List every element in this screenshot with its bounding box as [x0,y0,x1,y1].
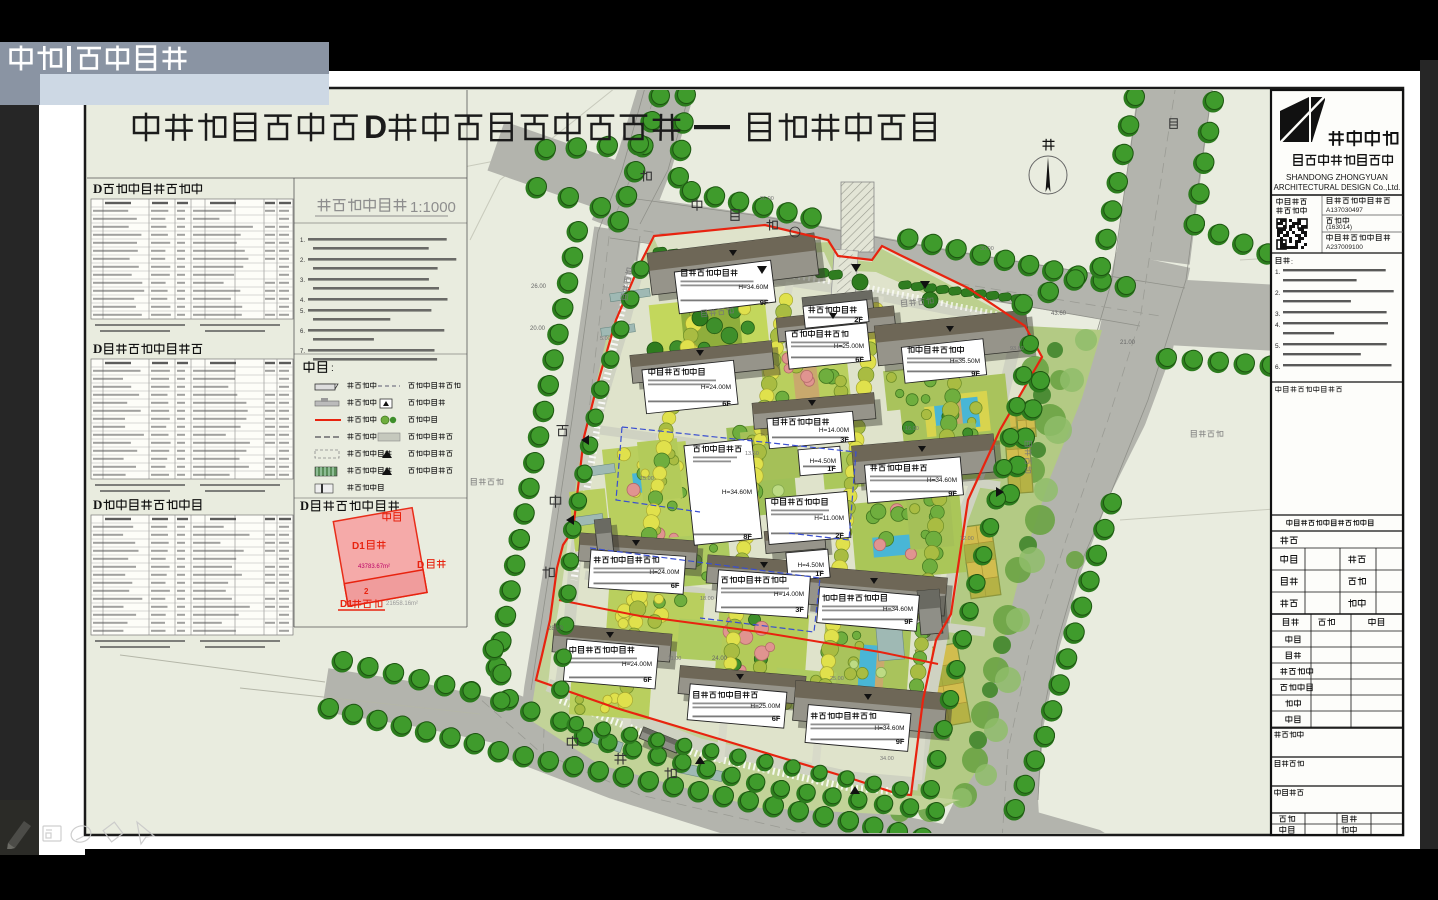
svg-text:9F: 9F [896,737,905,746]
svg-text:D: D [300,499,309,513]
svg-text:30.00: 30.00 [980,246,994,252]
svg-text:6F: 6F [772,714,781,723]
svg-text:11.00: 11.00 [668,656,681,662]
svg-text:18.00: 18.00 [700,596,714,602]
svg-text:H=4.50M: H=4.50M [797,562,824,569]
svg-text:D: D [364,109,387,145]
svg-text:6F: 6F [855,355,864,364]
svg-text:43.60: 43.60 [1051,311,1067,317]
svg-text:9F: 9F [971,369,980,378]
svg-text:H=34.60M: H=34.60M [722,489,752,496]
svg-text:28.00: 28.00 [548,626,564,632]
svg-text:D: D [93,181,102,196]
svg-text:93.60: 93.60 [1010,346,1024,352]
svg-text:15.00: 15.00 [640,476,654,482]
svg-text:13.50: 13.50 [745,451,759,457]
svg-text:5.: 5. [300,309,305,315]
svg-text:3F: 3F [795,605,804,614]
svg-text:9F: 9F [948,489,957,498]
svg-text:2: 2 [364,587,369,596]
svg-text:25.00: 25.00 [830,676,844,682]
svg-text:6.: 6. [300,329,305,335]
svg-text:D: D [417,560,424,571]
svg-text:A137030497: A137030497 [1326,207,1363,214]
svg-text:16.00: 16.00 [905,426,919,432]
svg-text:3.: 3. [1275,311,1281,318]
svg-text:12.00: 12.00 [960,536,974,542]
svg-text:(163014): (163014) [1326,224,1352,231]
svg-text:SHANDONG ZHONGYUAN: SHANDONG ZHONGYUAN [1286,173,1388,182]
svg-text:3.: 3. [300,278,305,284]
svg-text:H=11.00M: H=11.00M [814,515,844,522]
svg-text:9F: 9F [760,298,769,307]
svg-text:9F: 9F [904,617,913,626]
svg-text:6F: 6F [722,399,731,408]
svg-text::: : [331,363,334,374]
svg-text:6F: 6F [671,581,680,590]
svg-text:26.00: 26.00 [531,284,547,290]
svg-text:6F: 6F [643,675,652,684]
svg-text:20.00: 20.00 [530,326,546,332]
svg-text:21658.16m²: 21658.16m² [386,601,418,607]
svg-text:2F: 2F [854,315,863,324]
svg-text:5.: 5. [1275,343,1281,350]
svg-text:1F: 1F [827,464,836,473]
svg-text:A237009100: A237009100 [1326,244,1363,251]
svg-text:D: D [93,341,102,356]
svg-text:8F: 8F [743,532,752,541]
svg-text:1F: 1F [815,569,824,578]
svg-text::: : [1291,259,1293,266]
svg-text:1.: 1. [300,238,305,244]
svg-text:D1: D1 [352,541,365,552]
svg-text:1:1000: 1:1000 [410,199,456,216]
svg-text:4.: 4. [1275,322,1281,329]
svg-text:5.00: 5.00 [600,336,611,342]
svg-text:3F: 3F [840,435,849,444]
svg-text:43783.67m²: 43783.67m² [358,564,390,570]
svg-text:34.00: 34.00 [880,756,894,762]
svg-text:2.: 2. [300,258,305,264]
svg-text:4.: 4. [300,298,305,304]
svg-text:D1: D1 [340,599,353,610]
svg-text:D: D [93,497,102,512]
svg-text:H=14.00M: H=14.00M [819,427,849,434]
svg-text:2.: 2. [1275,290,1281,297]
svg-text:1.: 1. [1275,269,1281,276]
svg-text:ARCHITECTURAL DESIGN Co.,Ltd.: ARCHITECTURAL DESIGN Co.,Ltd. [1274,183,1401,192]
svg-text:26.00: 26.00 [760,196,774,202]
svg-text:6.: 6. [1275,364,1281,371]
svg-text:24.00: 24.00 [712,656,728,662]
svg-text:21.00: 21.00 [1120,340,1136,346]
